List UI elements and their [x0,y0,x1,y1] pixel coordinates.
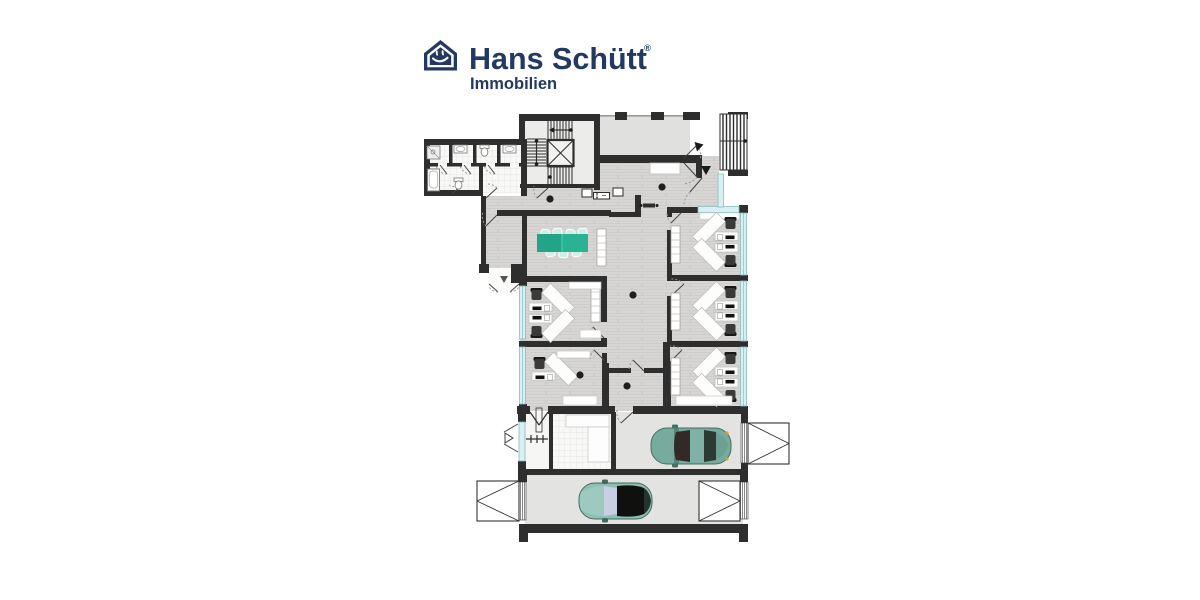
svg-text:Hans Schütt: Hans Schütt [469,42,647,76]
svg-text:®: ® [644,43,651,54]
svg-text:Immobilien: Immobilien [470,75,557,93]
